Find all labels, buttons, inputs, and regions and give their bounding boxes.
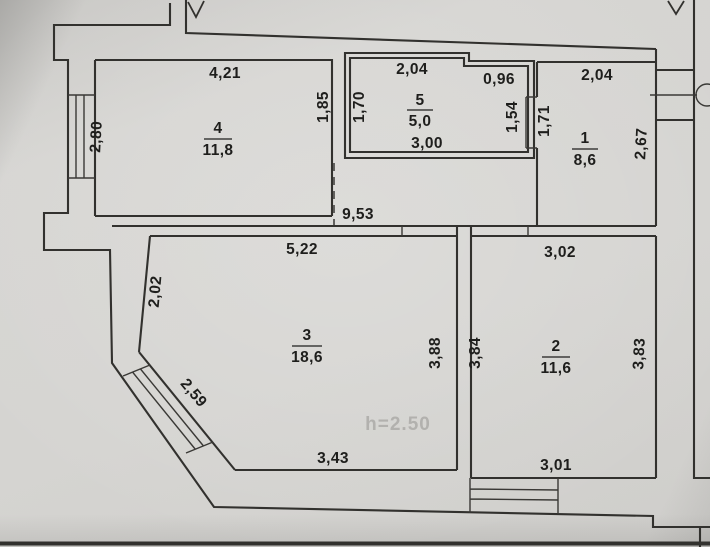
room4-dim-right: 1,85 [315,91,332,123]
room1-dim-right: 2,67 [632,127,651,160]
room3-dim-right: 3,88 [427,337,444,369]
room4-area: 11,8 [203,142,234,159]
room3-number: 3 [302,327,311,344]
room4-dim-left: 2,80 [87,120,106,153]
room4-labels: 4,21 2,80 1,85 4 11,8 [87,65,332,159]
room1-dim-left: 1,71 [536,105,553,137]
room1-area: 8,6 [574,152,597,169]
vent-mark-left-icon [188,1,204,17]
room1-walls [526,49,710,226]
door-knob-icon [696,84,710,106]
outer-wall-top [186,0,656,49]
ceiling-height-watermark: h=2.50 [365,414,431,435]
room5-area: 5,0 [409,113,432,130]
room5-dim-right: 1,54 [504,101,521,133]
room1-number: 1 [580,130,589,147]
room4-number: 4 [213,120,222,137]
corridor-walls [112,226,656,236]
room5-dim-bottom: 3,00 [411,135,443,152]
room2-window [470,478,558,514]
door-jamb-ticks [402,226,528,236]
room3-area: 18,6 [291,349,323,366]
room2-dim-left: 3,84 [467,337,484,369]
room3-dim-left: 2,02 [146,275,166,308]
room2-area: 11,6 [541,360,572,377]
room3-dim-top: 5,22 [286,241,318,258]
floor-plan-drawing: 4,21 2,80 1,85 4 11,8 2,04 0,96 1,70 1,5… [0,0,710,547]
room1-dim-top: 2,04 [581,67,613,84]
room1-labels: 2,04 1,71 2,67 1 8,6 [536,67,651,169]
floor-plan-photo: 4,21 2,80 1,85 4 11,8 2,04 0,96 1,70 1,5… [0,0,710,547]
room2-labels: 3,02 3,84 3,83 3,01 2 11,6 [467,244,649,474]
room5-number: 5 [415,92,424,109]
room2-number: 2 [551,338,560,355]
room2-dim-bottom: 3,01 [540,457,572,474]
room4-dim-top: 4,21 [209,65,241,82]
room3-labels: 5,22 2,02 2,59 3,88 3,43 3 18,6 h=2.50 [146,241,444,467]
vent-mark-right-icon [668,1,684,14]
room3-dim-bottom: 3,43 [317,450,349,467]
room2-dim-top: 3,02 [544,244,576,261]
room3-diagonal-window [123,365,213,453]
room5-dim-top-left: 2,04 [396,61,428,78]
room5-dim-left: 1,70 [351,91,368,123]
outer-wall-right [694,0,710,478]
room5-dim-top-right: 0,96 [483,71,515,88]
room4-walls [68,60,332,216]
room5-labels: 2,04 0,96 1,70 1,54 3,00 5 5,0 [351,61,521,152]
corridor-dim: 9,53 [342,206,374,223]
room2-dim-right: 3,83 [630,337,649,370]
